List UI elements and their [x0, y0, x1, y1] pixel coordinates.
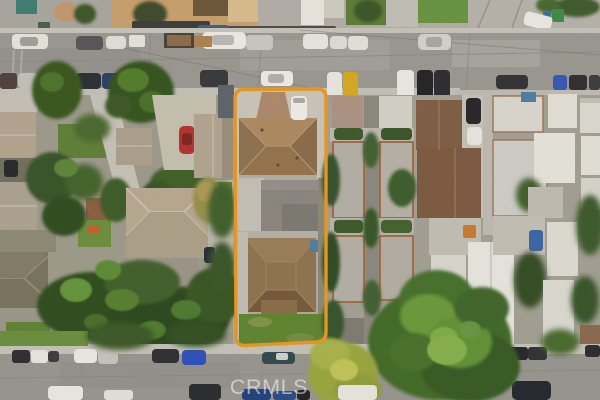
svg-text:CRMLS: CRMLS	[230, 375, 308, 399]
